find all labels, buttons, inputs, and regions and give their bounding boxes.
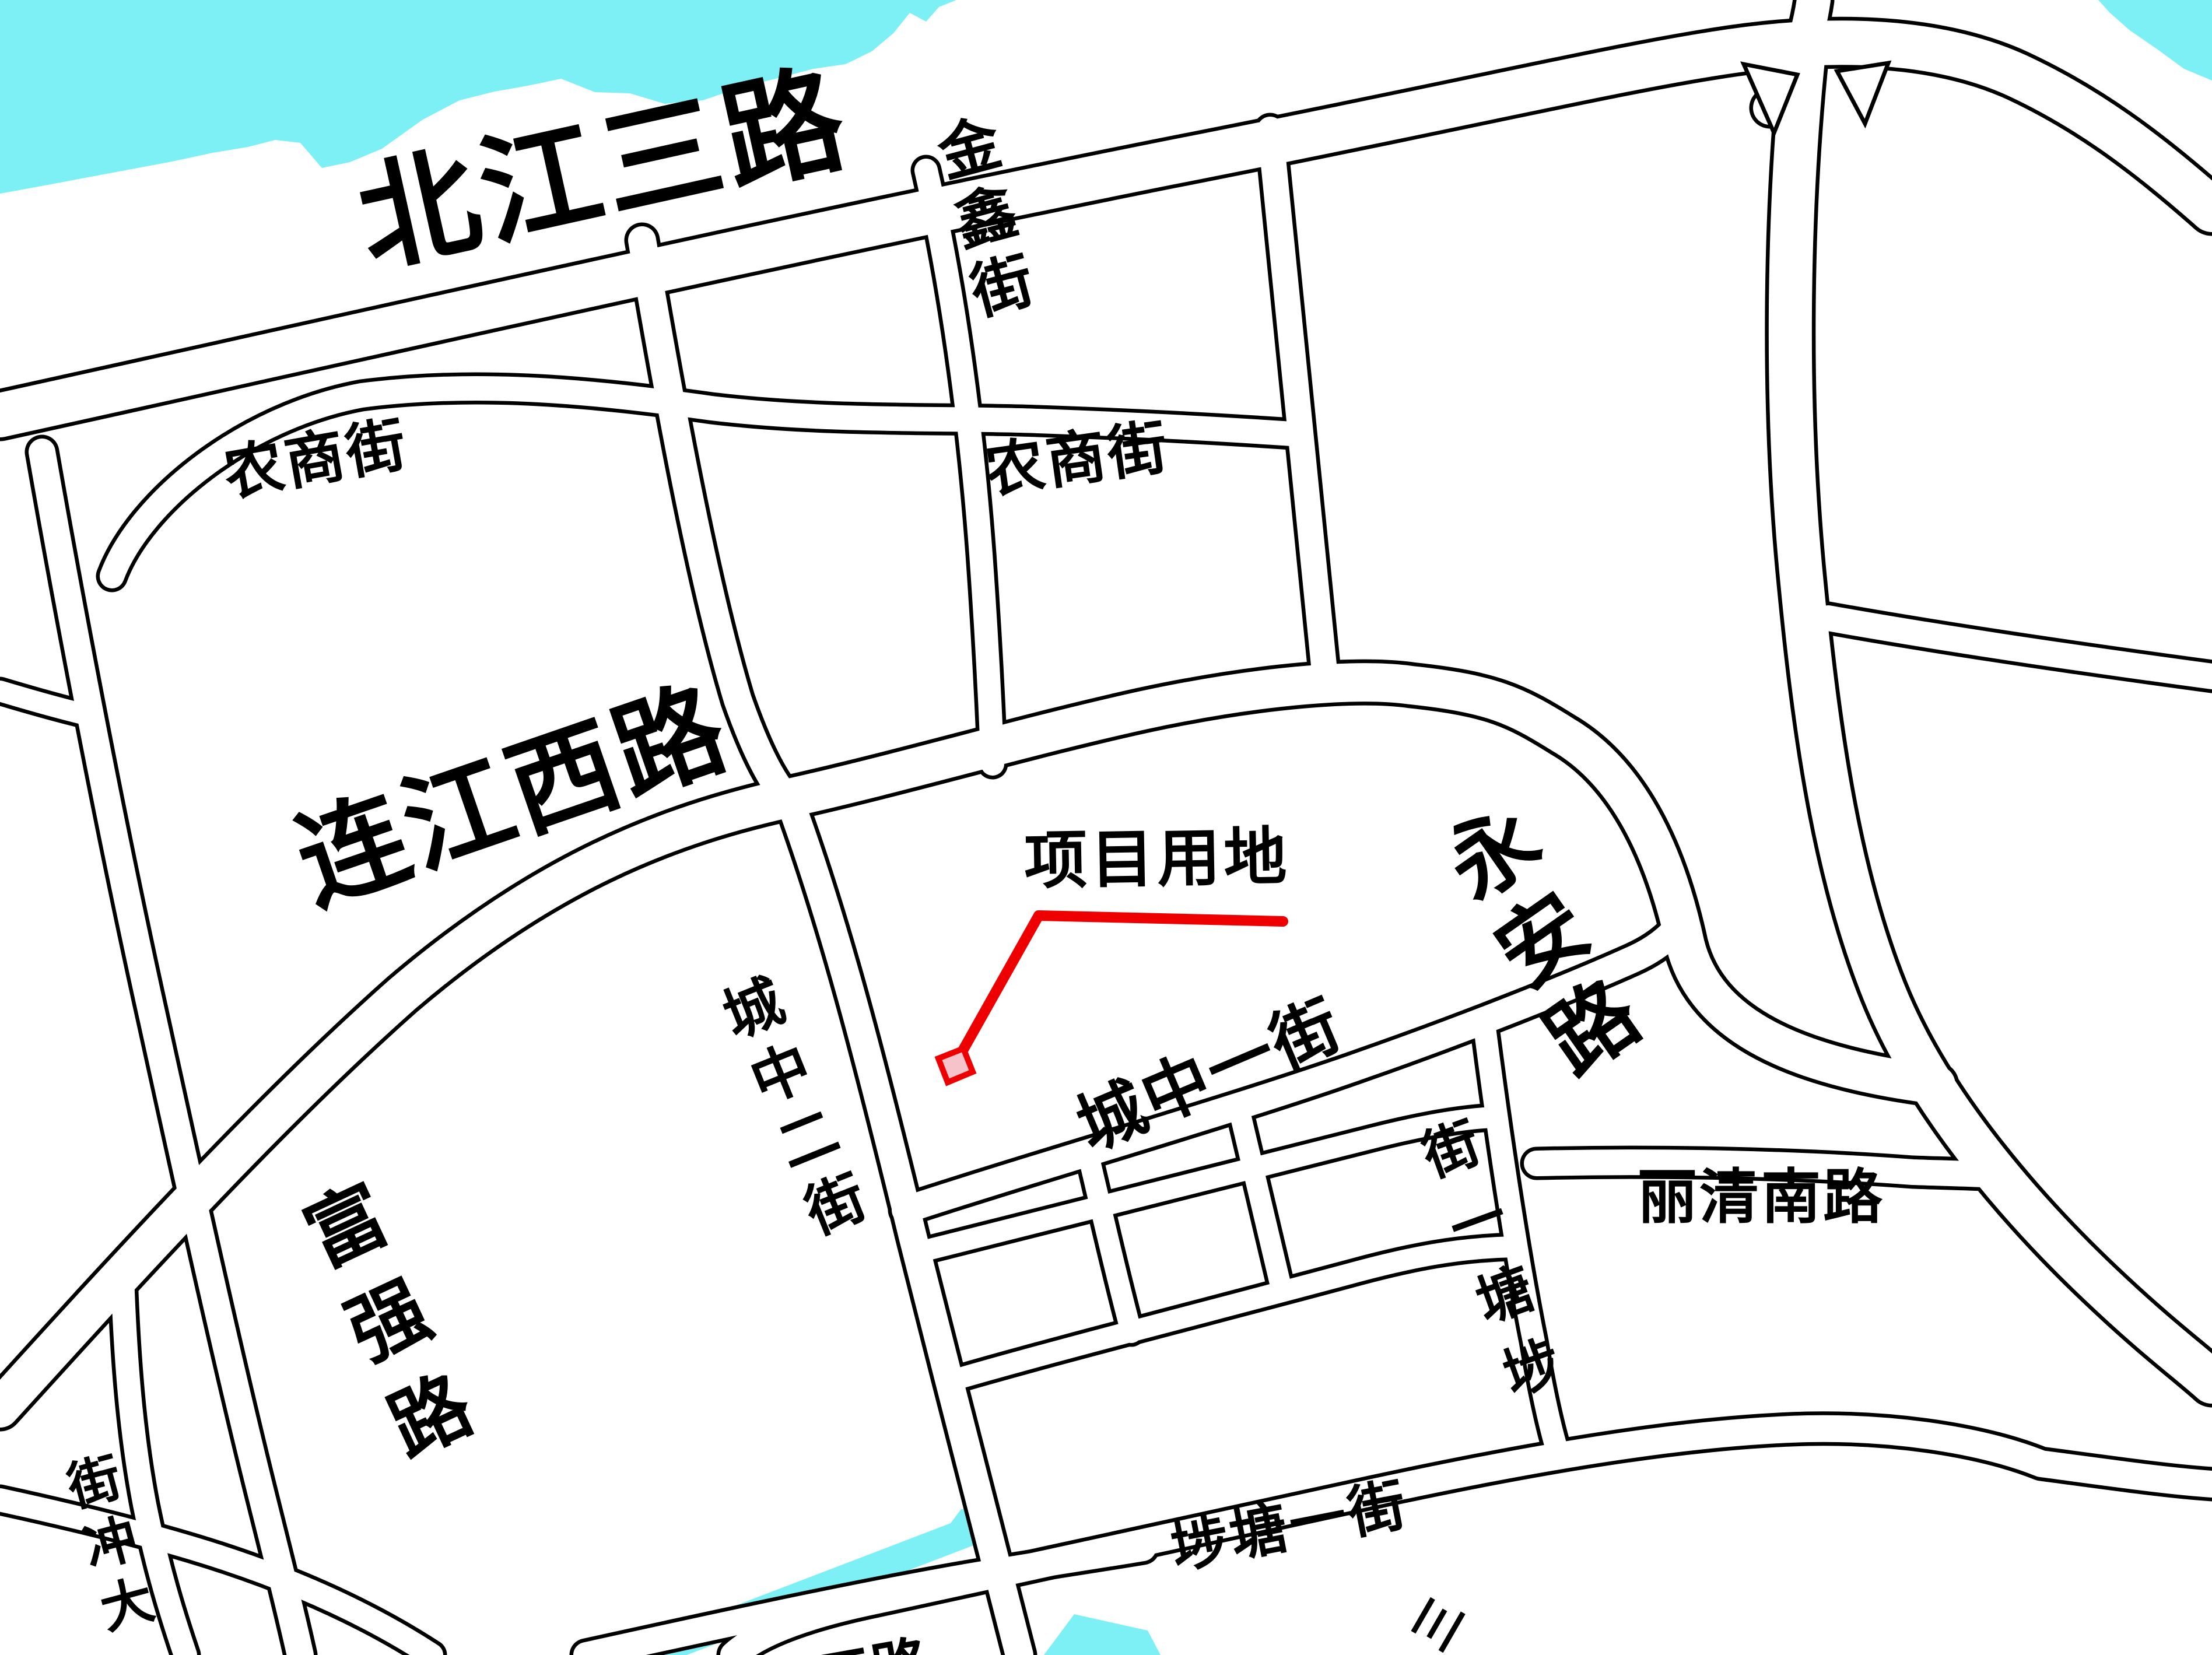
label-san-partial: 三 bbox=[1401, 1589, 1476, 1655]
project-site-parcel bbox=[938, 1049, 973, 1082]
label-fuqiang-road: 富强路 bbox=[291, 1167, 486, 1474]
label-jinxin-street-char-2: 街 bbox=[963, 243, 1041, 329]
junction-triangle-east bbox=[1837, 63, 1888, 124]
label-xilu-partial: 西路 bbox=[808, 1629, 937, 1655]
label-fuqiang-road-char-0: 富 bbox=[291, 1167, 402, 1284]
river-top-right bbox=[2098, 0, 2212, 80]
site-location-map: 项目用地 北江三路金鑫街农商街农商街连江西路城中一街城中二街永安路丽清南路富强路… bbox=[0, 0, 2212, 1655]
label-fuqiang-road-char-2: 路 bbox=[375, 1357, 486, 1475]
map-canvas: 项目用地 北江三路金鑫街农商街农商街连江西路城中一街城中二街永安路丽清南路富强路… bbox=[0, 0, 2212, 1655]
label-fuqiang-road-char-1: 强 bbox=[333, 1262, 444, 1379]
label-butang-1-street: 埗塘一街 bbox=[1165, 1470, 1414, 1582]
label-san-partial-char-0: 三 bbox=[1401, 1589, 1476, 1655]
label-liqing-south-road: 丽清南路 bbox=[1638, 1162, 1885, 1232]
canal-bottom-patch bbox=[1044, 1614, 1161, 1655]
east-block-street bbox=[1828, 618, 2212, 676]
project-site-label: 项目用地 bbox=[1023, 820, 1291, 898]
north-block-street bbox=[1270, 129, 1325, 676]
